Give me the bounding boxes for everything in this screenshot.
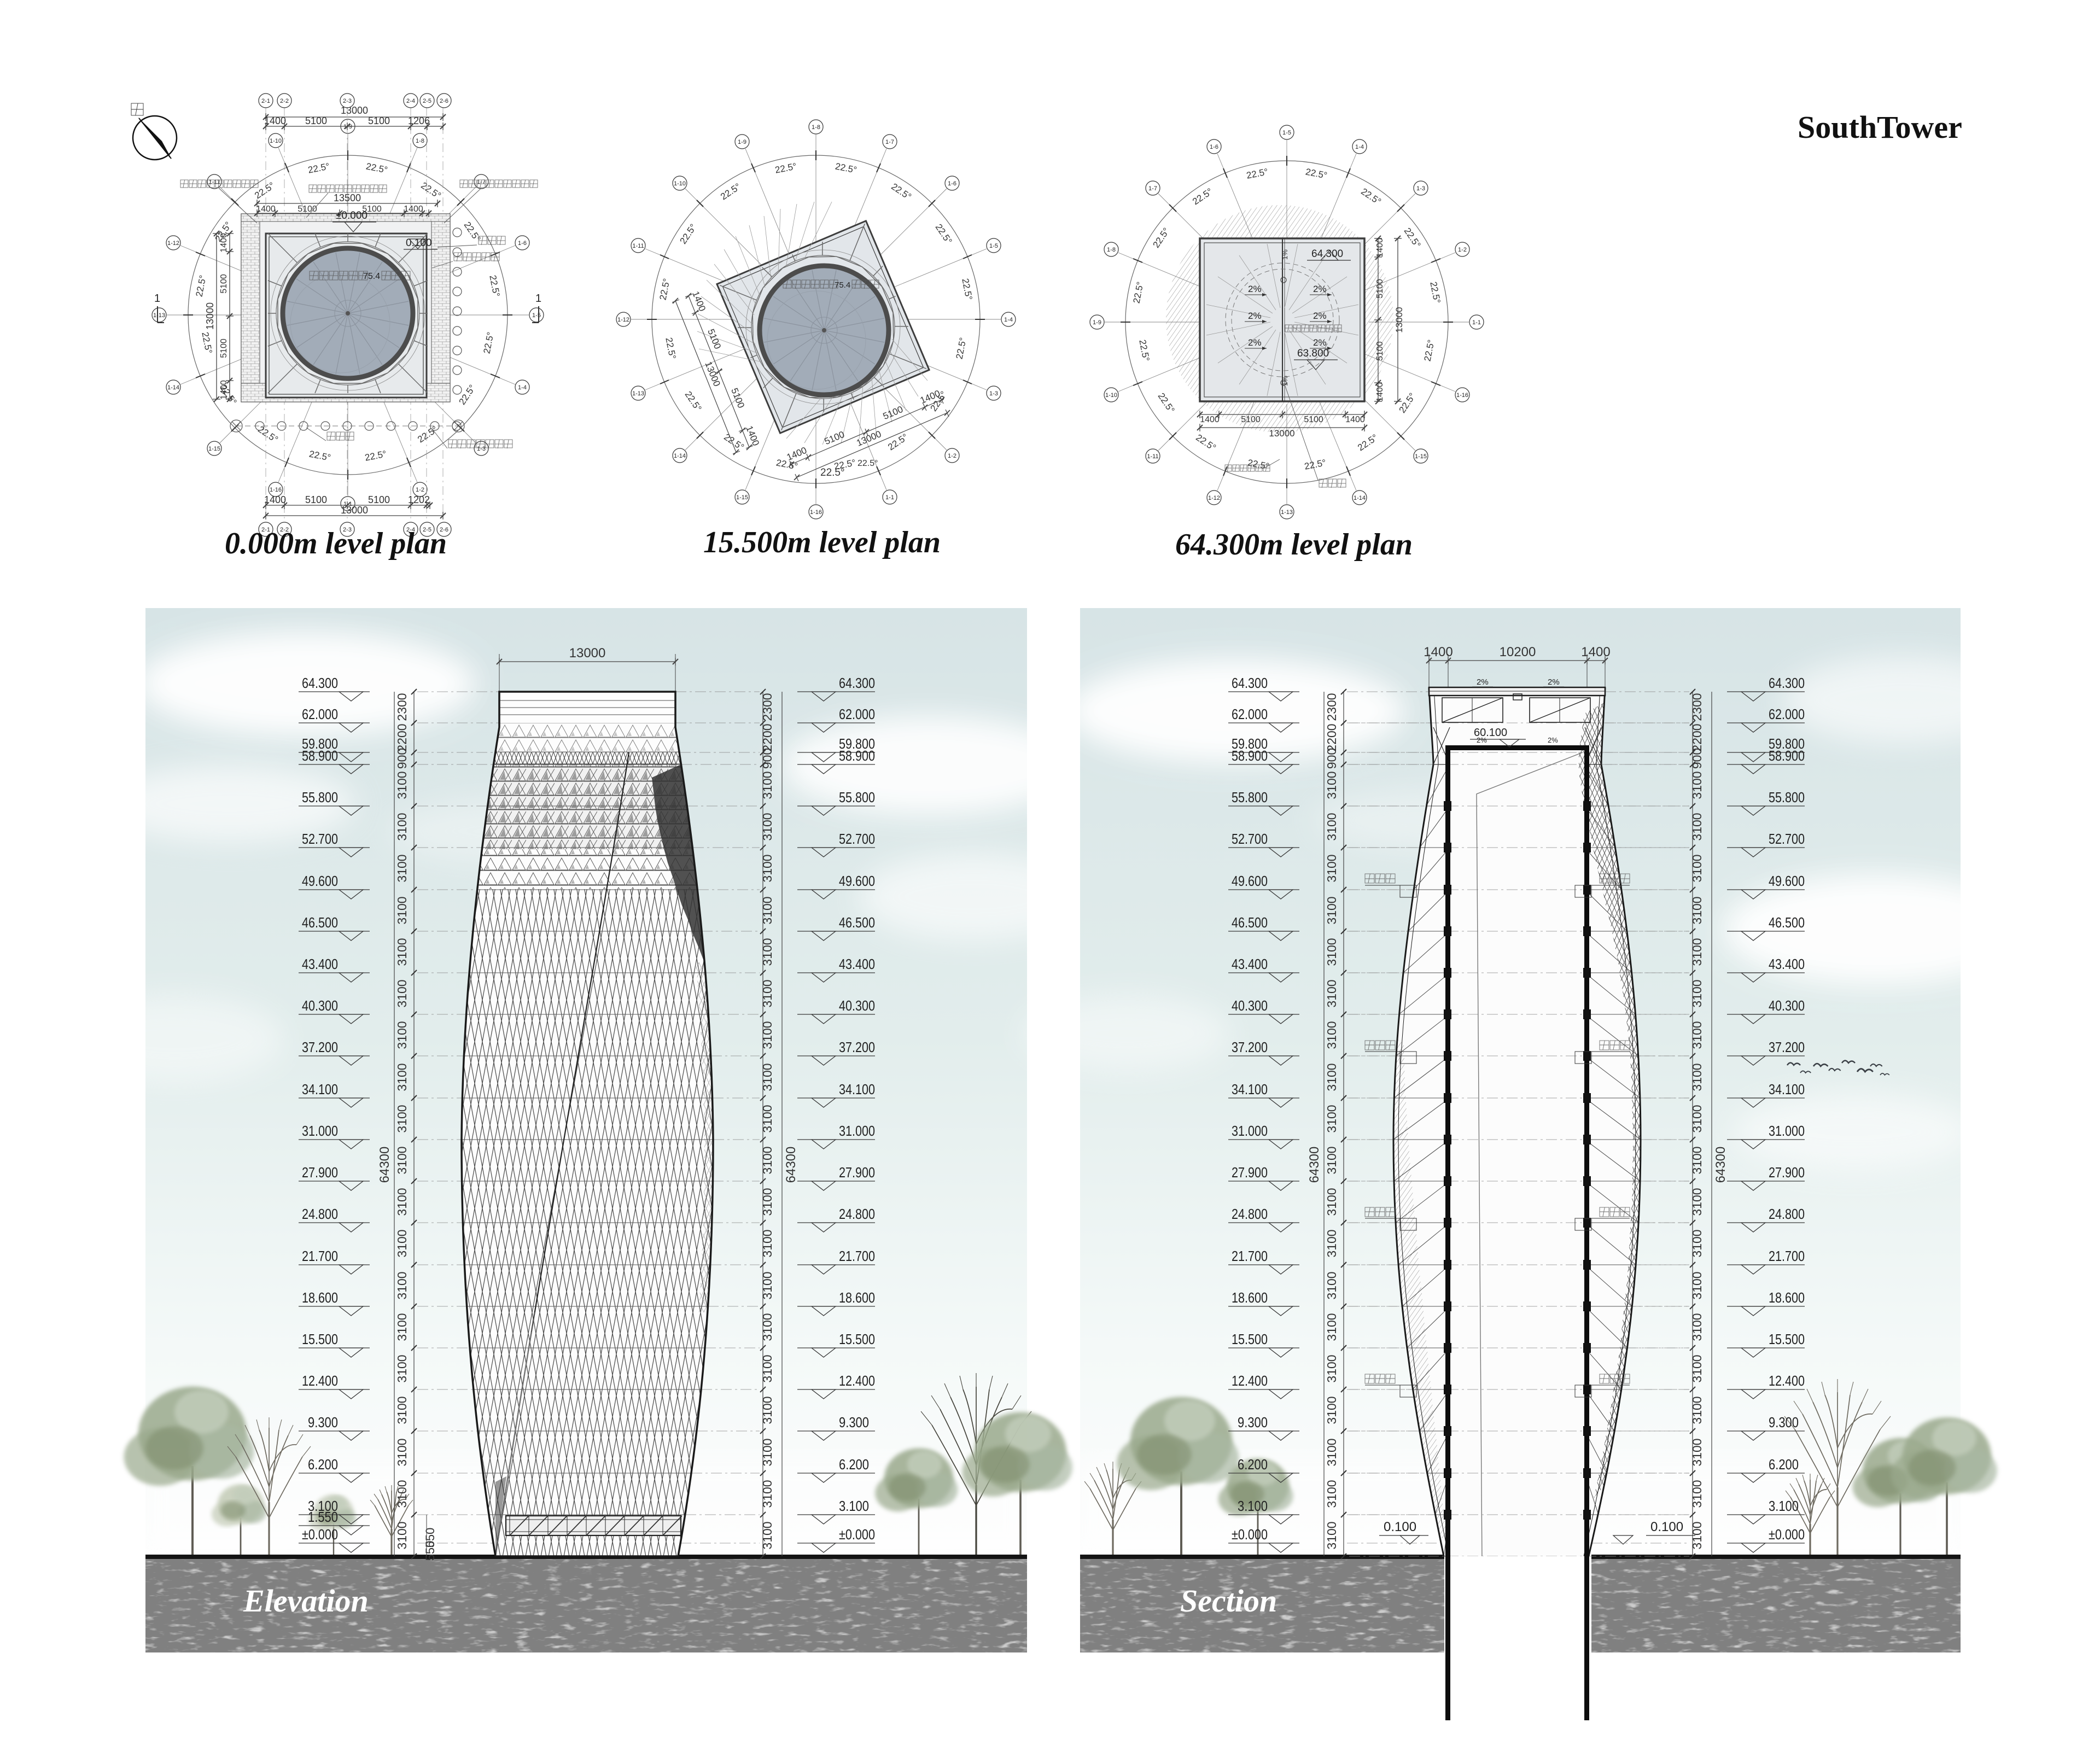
svg-text:5100: 5100 [219, 338, 229, 358]
svg-text:3100: 3100 [1690, 1063, 1704, 1091]
svg-text:62.000: 62.000 [302, 706, 338, 722]
svg-text:3100: 3100 [395, 771, 409, 799]
svg-text:3100: 3100 [395, 1021, 409, 1049]
svg-text:3100: 3100 [395, 813, 409, 840]
svg-text:3100: 3100 [1325, 1021, 1339, 1049]
svg-text:2%: 2% [1548, 736, 1558, 744]
svg-text:2-6: 2-6 [440, 98, 448, 104]
svg-text:0.100: 0.100 [1384, 1520, 1416, 1534]
svg-text:3100: 3100 [1690, 1105, 1704, 1132]
svg-text:3100: 3100 [760, 771, 774, 799]
svg-text:22.5°: 22.5° [820, 467, 845, 478]
svg-text:18.600: 18.600 [1232, 1289, 1268, 1306]
svg-text:1-7: 1-7 [885, 139, 894, 145]
svg-text:3100: 3100 [395, 1271, 409, 1299]
svg-text:9.300: 9.300 [1238, 1414, 1268, 1430]
svg-text:1-10: 1-10 [1105, 392, 1117, 399]
svg-text:1400: 1400 [404, 205, 423, 214]
svg-text:21.700: 21.700 [1232, 1248, 1268, 1264]
svg-text:1-2: 1-2 [948, 453, 956, 459]
svg-text:3100: 3100 [1325, 1271, 1339, 1299]
svg-text:64.300: 64.300 [1311, 248, 1343, 260]
svg-text:49.600: 49.600 [1769, 873, 1805, 889]
svg-text:3100: 3100 [395, 979, 409, 1007]
svg-text:2%: 2% [1248, 284, 1262, 294]
svg-text:5100: 5100 [1375, 341, 1385, 361]
svg-text:3100: 3100 [1690, 813, 1704, 840]
svg-text:1-16: 1-16 [810, 509, 822, 516]
svg-text:1-11: 1-11 [1147, 453, 1158, 460]
svg-text:3100: 3100 [1690, 896, 1704, 924]
svg-text:1-5: 1-5 [532, 312, 541, 319]
svg-text:1-14: 1-14 [674, 453, 686, 459]
svg-text:1-4: 1-4 [1355, 144, 1364, 150]
svg-text:1-1: 1-1 [1472, 319, 1481, 326]
svg-text:3100: 3100 [1690, 1021, 1704, 1049]
svg-text:1400: 1400 [1581, 645, 1610, 659]
svg-text:2300: 2300 [395, 693, 409, 721]
svg-text:3100: 3100 [395, 1063, 409, 1091]
svg-text:15.500: 15.500 [302, 1331, 338, 1347]
svg-text:40.300: 40.300 [839, 997, 875, 1014]
svg-text:52.700: 52.700 [1232, 831, 1268, 847]
svg-text:2%: 2% [1313, 284, 1327, 294]
svg-text:55.800: 55.800 [1769, 789, 1805, 805]
svg-text:3100: 3100 [760, 979, 774, 1007]
svg-text:18.600: 18.600 [302, 1289, 338, 1306]
svg-text:46.500: 46.500 [839, 914, 875, 931]
svg-text:18.600: 18.600 [1769, 1289, 1805, 1306]
svg-text:5100: 5100 [1241, 415, 1261, 424]
svg-text:1-13: 1-13 [632, 390, 644, 397]
svg-text:13000: 13000 [569, 646, 606, 661]
svg-text:2%: 2% [1313, 337, 1327, 348]
svg-text:1-6: 1-6 [948, 180, 956, 187]
svg-text:3100: 3100 [760, 854, 774, 882]
svg-text:3.100: 3.100 [1238, 1498, 1268, 1514]
svg-text:3.100: 3.100 [839, 1498, 869, 1514]
svg-text:37.200: 37.200 [302, 1039, 338, 1055]
svg-text:75.4: 75.4 [835, 281, 850, 290]
svg-text:6.200: 6.200 [839, 1456, 869, 1473]
svg-text:Section: Section [1180, 1583, 1277, 1619]
svg-text:13500: 13500 [334, 192, 361, 203]
svg-text:62.000: 62.000 [1769, 706, 1805, 722]
svg-text:1-8: 1-8 [416, 138, 424, 144]
svg-text:1-5: 1-5 [1282, 130, 1291, 136]
svg-text:5100: 5100 [297, 205, 317, 214]
svg-text:18.600: 18.600 [839, 1289, 875, 1306]
svg-text:64.300: 64.300 [1769, 675, 1805, 691]
svg-text:3100: 3100 [395, 854, 409, 882]
svg-text:3100: 3100 [1325, 1438, 1339, 1466]
svg-text:2%: 2% [1313, 311, 1327, 321]
svg-text:3100: 3100 [760, 1063, 774, 1091]
svg-text:75.4: 75.4 [363, 272, 380, 281]
svg-text:±0.000: ±0.000 [336, 210, 367, 221]
svg-text:15.500: 15.500 [1769, 1331, 1805, 1347]
svg-text:1400: 1400 [1200, 415, 1220, 424]
svg-text:5100: 5100 [368, 115, 390, 126]
svg-text:3100: 3100 [1325, 771, 1339, 799]
svg-text:13000: 13000 [1269, 428, 1294, 439]
svg-text:3100: 3100 [395, 1396, 409, 1424]
svg-text:1-13: 1-13 [153, 312, 165, 319]
svg-text:0.100: 0.100 [1650, 1520, 1683, 1534]
svg-text:1400: 1400 [1345, 415, 1365, 424]
svg-text:1206: 1206 [408, 115, 430, 126]
svg-text:2300: 2300 [760, 693, 774, 721]
svg-text:27.900: 27.900 [1232, 1164, 1268, 1181]
svg-text:2200: 2200 [760, 723, 774, 751]
svg-text:43.400: 43.400 [1232, 956, 1268, 972]
svg-text:9.300: 9.300 [308, 1414, 338, 1430]
svg-text:3100: 3100 [1325, 896, 1339, 924]
svg-text:2200: 2200 [1690, 723, 1704, 751]
svg-text:5100: 5100 [1304, 415, 1323, 424]
svg-text:27.900: 27.900 [839, 1164, 875, 1181]
svg-text:37.200: 37.200 [1232, 1039, 1268, 1055]
svg-text:3100: 3100 [1325, 1229, 1339, 1257]
svg-text:3100: 3100 [760, 1521, 774, 1549]
svg-text:58.900: 58.900 [302, 747, 338, 764]
svg-text:49.600: 49.600 [302, 873, 338, 889]
svg-text:58.900: 58.900 [1769, 747, 1805, 764]
svg-text:3100: 3100 [395, 1438, 409, 1466]
svg-text:5100: 5100 [368, 494, 390, 505]
svg-text:1-16: 1-16 [270, 487, 282, 493]
svg-text:3100: 3100 [395, 1521, 409, 1549]
svg-text:49.600: 49.600 [839, 873, 875, 889]
svg-text:1400: 1400 [1375, 382, 1385, 402]
svg-text:9.300: 9.300 [839, 1414, 869, 1430]
svg-text:31.000: 31.000 [302, 1123, 338, 1139]
svg-text:1%: 1% [1281, 376, 1289, 386]
svg-text:1-12: 1-12 [1208, 495, 1220, 501]
svg-text:900: 900 [395, 748, 409, 769]
svg-text:58.900: 58.900 [1232, 747, 1268, 764]
svg-text:2%: 2% [1477, 736, 1487, 744]
svg-text:3100: 3100 [395, 1229, 409, 1257]
svg-text:62.000: 62.000 [839, 706, 875, 722]
svg-text:1400: 1400 [264, 494, 286, 505]
svg-text:3100: 3100 [760, 1188, 774, 1216]
svg-text:3100: 3100 [1690, 1313, 1704, 1341]
svg-text:31.000: 31.000 [1769, 1123, 1805, 1139]
svg-text:24.800: 24.800 [302, 1206, 338, 1222]
svg-text:58.900: 58.900 [839, 747, 875, 764]
svg-text:5100: 5100 [305, 115, 327, 126]
svg-text:3100: 3100 [1325, 1063, 1339, 1091]
svg-text:34.100: 34.100 [839, 1081, 875, 1097]
svg-text:15.500: 15.500 [839, 1331, 875, 1347]
svg-text:3100: 3100 [1690, 1396, 1704, 1424]
svg-text:3100: 3100 [1325, 1313, 1339, 1341]
svg-text:6.200: 6.200 [308, 1456, 338, 1473]
svg-text:2-4: 2-4 [406, 98, 415, 104]
svg-text:2200: 2200 [395, 723, 409, 751]
svg-text:±0.000: ±0.000 [839, 1526, 875, 1543]
svg-text:40.300: 40.300 [1232, 997, 1268, 1014]
svg-text:46.500: 46.500 [302, 914, 338, 931]
svg-text:1-14: 1-14 [1354, 495, 1366, 501]
svg-text:22.5°: 22.5° [857, 459, 878, 468]
svg-text:3100: 3100 [1325, 1396, 1339, 1424]
svg-text:3100: 3100 [1690, 1271, 1704, 1299]
svg-text:3100: 3100 [760, 1354, 774, 1382]
svg-text:13000: 13000 [1394, 307, 1404, 332]
svg-text:2%: 2% [1248, 337, 1262, 348]
svg-text:1-5: 1-5 [989, 243, 998, 249]
svg-text:34.100: 34.100 [1232, 1081, 1268, 1097]
svg-text:15.500: 15.500 [1232, 1331, 1268, 1347]
svg-text:1400: 1400 [219, 233, 229, 253]
svg-text:52.700: 52.700 [1769, 831, 1805, 847]
svg-text:1400: 1400 [1424, 645, 1452, 659]
svg-text:1-3: 1-3 [989, 390, 998, 397]
svg-text:3100: 3100 [395, 938, 409, 966]
svg-text:3100: 3100 [760, 1271, 774, 1299]
svg-text:1400: 1400 [264, 115, 286, 126]
svg-text:2300: 2300 [1690, 693, 1704, 721]
svg-text:34.100: 34.100 [1769, 1081, 1805, 1097]
svg-text:1-6: 1-6 [1210, 144, 1218, 150]
svg-text:24.800: 24.800 [1769, 1206, 1805, 1222]
svg-text:31.000: 31.000 [1232, 1123, 1268, 1139]
svg-text:2%: 2% [1248, 311, 1262, 321]
svg-text:1-15: 1-15 [208, 446, 220, 452]
svg-text:1202: 1202 [408, 494, 430, 505]
svg-text:3100: 3100 [1690, 938, 1704, 966]
svg-text:3.100: 3.100 [1769, 1498, 1799, 1514]
svg-text:5100: 5100 [305, 494, 327, 505]
svg-text:64300: 64300 [1713, 1147, 1728, 1183]
svg-text:1-1: 1-1 [885, 494, 894, 501]
svg-text:1-2: 1-2 [1458, 247, 1467, 253]
svg-text:Elevation: Elevation [243, 1583, 369, 1619]
svg-text:15.500m level plan: 15.500m level plan [703, 525, 941, 559]
svg-text:2-5: 2-5 [423, 98, 431, 104]
svg-text:64300: 64300 [377, 1147, 392, 1183]
svg-text:3100: 3100 [760, 1105, 774, 1132]
svg-text:34.100: 34.100 [302, 1081, 338, 1097]
svg-text:24.800: 24.800 [1232, 1206, 1268, 1222]
svg-text:27.900: 27.900 [302, 1164, 338, 1181]
svg-text:1-9: 1-9 [1093, 319, 1101, 326]
svg-text:12.400: 12.400 [302, 1373, 338, 1389]
svg-text:43.400: 43.400 [839, 956, 875, 972]
svg-text:3100: 3100 [395, 896, 409, 924]
svg-text:SouthTower: SouthTower [1798, 109, 1962, 145]
svg-text:1400: 1400 [256, 205, 276, 214]
svg-text:±0.000: ±0.000 [1232, 1526, 1268, 1543]
svg-text:1-16: 1-16 [1456, 392, 1468, 399]
svg-text:43.400: 43.400 [1769, 956, 1805, 972]
svg-text:13000: 13000 [341, 505, 368, 516]
svg-text:21.700: 21.700 [302, 1248, 338, 1264]
svg-text:3100: 3100 [760, 1396, 774, 1424]
svg-text:3100: 3100 [395, 1480, 409, 1508]
svg-text:6.200: 6.200 [1769, 1456, 1799, 1473]
svg-text:3100: 3100 [760, 1438, 774, 1466]
svg-text:49.600: 49.600 [1232, 873, 1268, 889]
svg-text:9.300: 9.300 [1769, 1414, 1799, 1430]
svg-text:3100: 3100 [1690, 771, 1704, 799]
svg-text:1-3: 1-3 [1416, 185, 1425, 192]
svg-text:1-11: 1-11 [632, 243, 644, 249]
svg-text:3100: 3100 [1690, 1229, 1704, 1257]
svg-text:2%: 2% [1548, 678, 1560, 687]
svg-text:3100: 3100 [1690, 1188, 1704, 1216]
svg-text:2-2: 2-2 [280, 98, 289, 104]
svg-text:3100: 3100 [760, 896, 774, 924]
svg-text:3100: 3100 [1325, 1146, 1339, 1174]
svg-text:64300: 64300 [784, 1147, 798, 1183]
svg-text:1-7: 1-7 [1148, 185, 1157, 192]
svg-text:2-3: 2-3 [343, 98, 352, 104]
svg-text:550: 550 [423, 1541, 437, 1561]
svg-text:2200: 2200 [1325, 723, 1339, 751]
svg-text:21.700: 21.700 [839, 1248, 875, 1264]
svg-text:63.800: 63.800 [1297, 348, 1329, 359]
svg-text:3100: 3100 [1690, 1480, 1704, 1508]
svg-text:64.300: 64.300 [839, 675, 875, 691]
svg-text:52.700: 52.700 [839, 831, 875, 847]
svg-text:3100: 3100 [1325, 1354, 1339, 1382]
svg-text:3100: 3100 [760, 1480, 774, 1508]
svg-text:3100: 3100 [1690, 1438, 1704, 1466]
svg-text:62.000: 62.000 [1232, 706, 1268, 722]
svg-text:3100: 3100 [760, 938, 774, 966]
svg-text:1-8: 1-8 [1107, 247, 1116, 253]
svg-text:1-10: 1-10 [270, 138, 282, 144]
svg-text:5100: 5100 [1375, 279, 1385, 299]
svg-text:5100: 5100 [219, 274, 229, 294]
svg-text:6.200: 6.200 [1238, 1456, 1268, 1473]
svg-text:55.800: 55.800 [839, 789, 875, 805]
svg-text:40.300: 40.300 [302, 997, 338, 1014]
svg-text:1-4: 1-4 [1004, 317, 1013, 323]
svg-text:12.400: 12.400 [1232, 1373, 1268, 1389]
svg-text:1: 1 [154, 293, 160, 305]
svg-text:2%: 2% [1477, 678, 1489, 687]
svg-text:21.700: 21.700 [1769, 1248, 1805, 1264]
svg-text:2300: 2300 [1325, 693, 1339, 721]
svg-text:1-4: 1-4 [518, 384, 527, 391]
svg-text:3100: 3100 [1325, 1480, 1339, 1508]
svg-text:3100: 3100 [395, 1105, 409, 1132]
svg-text:1-6: 1-6 [518, 240, 527, 247]
svg-text:1-15: 1-15 [736, 494, 748, 501]
svg-text:3100: 3100 [1325, 1521, 1339, 1549]
svg-text:1-12: 1-12 [617, 317, 629, 323]
svg-text:3100: 3100 [395, 1313, 409, 1341]
svg-text:3100: 3100 [1325, 1188, 1339, 1216]
svg-text:3100: 3100 [760, 1021, 774, 1049]
svg-text:12.400: 12.400 [1769, 1373, 1805, 1389]
svg-text:27.900: 27.900 [1769, 1164, 1805, 1181]
svg-text:12.400: 12.400 [839, 1373, 875, 1389]
svg-text:3100: 3100 [1325, 979, 1339, 1007]
svg-text:64.300: 64.300 [1232, 675, 1268, 691]
svg-text:1%: 1% [1281, 249, 1289, 260]
svg-text:1400: 1400 [219, 380, 229, 400]
svg-text:3100: 3100 [1325, 1105, 1339, 1132]
svg-text:1-2: 1-2 [416, 487, 424, 493]
svg-text:1-9: 1-9 [738, 139, 746, 145]
svg-text:31.000: 31.000 [839, 1123, 875, 1139]
svg-text:10200: 10200 [1500, 645, 1536, 659]
svg-text:3100: 3100 [395, 1146, 409, 1174]
svg-text:43.400: 43.400 [302, 956, 338, 972]
svg-text:37.200: 37.200 [839, 1039, 875, 1055]
svg-text:37.200: 37.200 [1769, 1039, 1805, 1055]
svg-text:55.800: 55.800 [302, 789, 338, 805]
svg-text:3100: 3100 [1690, 854, 1704, 882]
svg-text:64.300m level plan: 64.300m level plan [1175, 528, 1413, 562]
svg-text:52.700: 52.700 [302, 831, 338, 847]
svg-text:3100: 3100 [760, 813, 774, 840]
svg-text:55.800: 55.800 [1232, 789, 1268, 805]
svg-text:40.300: 40.300 [1769, 997, 1805, 1014]
svg-text:1-10: 1-10 [674, 180, 686, 187]
svg-text:13000: 13000 [205, 302, 215, 330]
svg-text:1-8: 1-8 [812, 124, 820, 131]
svg-text:±0.000: ±0.000 [302, 1526, 338, 1543]
svg-text:1: 1 [535, 293, 541, 305]
svg-text:3100: 3100 [395, 1354, 409, 1382]
svg-text:2-1: 2-1 [261, 98, 270, 104]
svg-text:3100: 3100 [1690, 1354, 1704, 1382]
svg-text:3100: 3100 [1325, 938, 1339, 966]
svg-text:64.300: 64.300 [302, 675, 338, 691]
svg-text:0.000m level plan: 0.000m level plan [225, 527, 447, 560]
svg-text:3100: 3100 [1690, 1146, 1704, 1174]
svg-text:3100: 3100 [760, 1229, 774, 1257]
svg-text:3100: 3100 [760, 1146, 774, 1174]
svg-text:±0.000: ±0.000 [1769, 1526, 1805, 1543]
svg-text:1-14: 1-14 [167, 384, 179, 391]
svg-text:46.500: 46.500 [1232, 914, 1268, 931]
svg-text:3100: 3100 [1690, 979, 1704, 1007]
svg-text:1400: 1400 [1375, 238, 1385, 258]
svg-text:900: 900 [1325, 748, 1339, 769]
svg-text:3100: 3100 [1325, 813, 1339, 840]
svg-text:3100: 3100 [395, 1188, 409, 1216]
svg-text:3100: 3100 [760, 1313, 774, 1341]
svg-text:1.550: 1.550 [308, 1509, 338, 1525]
svg-text:3100: 3100 [1325, 854, 1339, 882]
svg-text:24.800: 24.800 [839, 1206, 875, 1222]
svg-text:64300: 64300 [1307, 1147, 1322, 1183]
svg-text:1-12: 1-12 [167, 240, 179, 247]
svg-text:46.500: 46.500 [1769, 914, 1805, 931]
svg-text:1-13: 1-13 [1281, 509, 1293, 516]
svg-text:1-15: 1-15 [1415, 453, 1427, 460]
